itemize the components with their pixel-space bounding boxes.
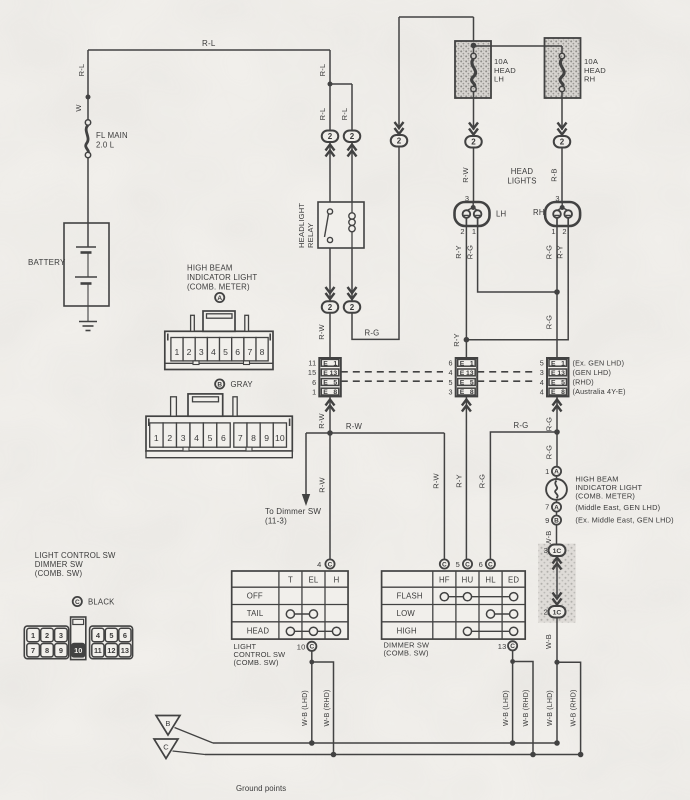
svg-text:2: 2 [471,138,476,147]
svg-text:1: 1 [561,360,565,367]
svg-text:1: 1 [472,227,476,236]
svg-text:1: 1 [545,467,549,476]
svg-text:6: 6 [235,347,240,357]
svg-text:R-W: R-W [346,422,363,431]
svg-text:2: 2 [397,137,402,146]
svg-text:(Australia 4Y-E): (Australia 4Y-E) [573,387,626,396]
svg-text:1: 1 [312,387,316,396]
svg-text:3: 3 [448,387,452,396]
svg-text:10: 10 [74,646,82,655]
svg-text:5: 5 [456,560,460,569]
svg-text:1: 1 [470,360,474,367]
svg-text:6: 6 [123,631,127,640]
svg-text:11: 11 [308,359,316,368]
svg-text:5: 5 [333,380,337,387]
svg-text:RELAY: RELAY [306,223,315,248]
svg-text:2: 2 [350,132,355,141]
svg-text:E: E [460,389,465,396]
svg-text:E: E [460,370,465,377]
svg-text:FL MAIN: FL MAIN [96,131,128,140]
svg-text:C: C [488,561,493,568]
svg-text:OFF: OFF [247,592,263,601]
svg-text:10A: 10A [494,57,509,66]
svg-text:(COMB. METER): (COMB. METER) [575,492,635,501]
svg-text:R-L: R-L [318,108,327,121]
svg-text:To Dimmer SW: To Dimmer SW [265,507,321,516]
svg-text:HIGH BEAM: HIGH BEAM [575,474,618,483]
svg-text:(Ex. GEN LHD): (Ex. GEN LHD) [573,359,625,368]
svg-text:ED: ED [508,576,519,585]
svg-text:C: C [465,561,470,568]
svg-text:8: 8 [260,347,265,357]
svg-text:E: E [551,360,556,367]
svg-text:R-G: R-G [545,445,554,459]
svg-text:13: 13 [466,370,474,377]
svg-text:5: 5 [208,433,213,443]
svg-text:E: E [323,389,328,396]
svg-text:HEADLIGHT: HEADLIGHT [297,203,306,248]
svg-text:3: 3 [59,631,63,640]
svg-text:C: C [75,599,80,606]
svg-text:2: 2 [460,227,464,236]
svg-text:INDICATOR LIGHT: INDICATOR LIGHT [575,483,642,492]
svg-text:W-B (LHD): W-B (LHD) [503,690,510,726]
svg-text:7: 7 [31,646,35,655]
svg-text:7: 7 [238,433,243,443]
svg-text:7: 7 [545,503,549,512]
svg-text:R-G: R-G [545,315,554,329]
svg-text:15: 15 [308,368,316,377]
svg-text:2: 2 [45,631,49,640]
svg-text:2: 2 [328,132,333,141]
svg-text:(COMB. SW): (COMB. SW) [35,569,83,578]
svg-text:R-W: R-W [317,323,326,339]
svg-text:13: 13 [330,370,338,377]
svg-text:C: C [328,561,333,568]
svg-text:10A: 10A [584,57,599,66]
svg-text:R-L: R-L [77,64,86,77]
svg-text:8: 8 [251,433,256,443]
svg-text:W-B (LHD): W-B (LHD) [547,690,554,726]
svg-text:3: 3 [540,368,544,377]
svg-text:13: 13 [557,370,565,377]
svg-text:4: 4 [211,347,216,357]
svg-text:8: 8 [333,389,337,396]
svg-text:1C: 1C [553,610,562,617]
svg-text:B: B [217,381,222,388]
svg-text:BATTERY: BATTERY [28,258,66,267]
svg-text:R-W: R-W [461,166,470,182]
svg-text:W-B: W-B [544,530,553,545]
svg-text:2: 2 [562,227,566,236]
svg-text:2: 2 [187,347,192,357]
svg-text:T: T [288,576,293,585]
svg-text:E: E [551,370,556,377]
svg-text:8: 8 [561,389,565,396]
svg-text:6: 6 [448,359,452,368]
svg-text:HEAD: HEAD [247,626,270,635]
svg-text:R-G: R-G [545,417,554,431]
svg-text:W: W [74,104,83,112]
svg-text:E: E [460,380,465,387]
svg-text:9: 9 [545,516,549,525]
svg-text:A: A [554,504,559,511]
svg-text:W-B (LHD): W-B (LHD) [302,690,309,726]
svg-text:R-G: R-G [545,245,554,259]
svg-text:LIGHT CONTROL SW: LIGHT CONTROL SW [35,551,116,560]
svg-text:5: 5 [470,380,474,387]
svg-text:HIGH: HIGH [397,626,417,635]
svg-text:4: 4 [194,433,199,443]
svg-text:INDICATOR LIGHT: INDICATOR LIGHT [187,273,257,282]
svg-text:2: 2 [328,303,333,312]
svg-text:3: 3 [181,433,186,443]
svg-text:R-W: R-W [318,476,327,492]
svg-text:2: 2 [350,303,355,312]
svg-text:R-G: R-G [514,421,529,430]
svg-text:5: 5 [109,631,113,640]
svg-text:E: E [551,380,556,387]
svg-text:(COMB. SW): (COMB. SW) [234,658,279,667]
svg-text:(Middle East, GEN LHD): (Middle East, GEN LHD) [575,503,660,512]
svg-text:1: 1 [175,347,180,357]
svg-text:(11-3): (11-3) [265,517,287,526]
svg-text:LH: LH [496,210,506,219]
svg-text:R-W: R-W [317,412,326,428]
svg-text:RH: RH [584,75,595,84]
svg-text:3: 3 [544,546,548,555]
svg-text:HL: HL [485,576,496,585]
svg-text:1: 1 [154,433,159,443]
svg-text:10: 10 [275,433,285,443]
svg-text:HEAD: HEAD [494,66,516,75]
svg-text:4: 4 [540,387,544,396]
svg-text:R-G: R-G [478,474,487,488]
svg-text:1: 1 [31,631,35,640]
svg-text:HF: HF [439,576,450,585]
svg-text:C: C [309,644,314,651]
svg-text:5: 5 [448,378,452,387]
svg-text:8: 8 [470,389,474,396]
svg-text:HEAD: HEAD [511,167,534,176]
svg-text:R-W: R-W [432,472,441,488]
svg-text:3: 3 [199,347,204,357]
svg-text:9: 9 [264,433,269,443]
svg-text:B: B [165,719,170,728]
svg-text:HU: HU [462,576,474,585]
svg-text:R-B: R-B [550,168,559,182]
svg-text:R-L: R-L [318,64,327,77]
svg-text:W-B (RHD): W-B (RHD) [523,689,530,726]
svg-text:W-B (RHD): W-B (RHD) [571,689,578,726]
svg-text:3: 3 [465,194,469,203]
svg-text:1: 1 [551,227,555,236]
svg-text:R-L: R-L [340,108,349,121]
svg-text:E: E [323,370,328,377]
svg-text:R-Y: R-Y [455,474,464,488]
svg-text:7: 7 [247,347,252,357]
svg-text:RH: RH [533,208,545,217]
svg-text:(RHD): (RHD) [573,378,594,387]
svg-text:13: 13 [498,642,507,651]
svg-text:(Ex. Middle East, GEN LHD): (Ex. Middle East, GEN LHD) [575,516,673,525]
svg-text:(COMB. METER): (COMB. METER) [187,283,250,292]
svg-text:4: 4 [317,560,321,569]
svg-text:EL: EL [309,576,319,585]
svg-text:W-B (RHD): W-B (RHD) [324,689,331,726]
svg-text:2: 2 [560,138,565,147]
svg-text:BLACK: BLACK [88,597,115,606]
svg-text:E: E [460,360,465,367]
svg-text:8: 8 [45,646,49,655]
svg-text:LH: LH [494,75,504,84]
svg-text:A: A [217,295,222,302]
svg-text:R-G: R-G [365,329,380,338]
svg-text:FLASH: FLASH [397,592,423,601]
svg-text:W-B: W-B [544,634,553,649]
svg-text:5: 5 [223,347,228,357]
svg-text:C: C [442,561,447,568]
svg-text:6: 6 [479,560,483,569]
svg-text:C: C [510,643,515,650]
svg-text:Ground points: Ground points [236,784,286,793]
svg-text:LOW: LOW [397,609,416,618]
svg-text:E: E [551,389,556,396]
svg-text:1C: 1C [553,548,562,555]
svg-text:R-Y: R-Y [452,333,461,347]
svg-text:E: E [323,360,328,367]
svg-text:3: 3 [555,194,559,203]
svg-text:10: 10 [297,642,306,651]
svg-text:4: 4 [540,378,544,387]
svg-text:(GEN LHD): (GEN LHD) [573,368,612,377]
svg-text:C: C [163,743,169,752]
svg-text:R-L: R-L [202,39,216,48]
svg-text:12: 12 [107,646,115,655]
svg-text:B: B [554,517,559,524]
svg-text:2: 2 [544,608,548,617]
svg-text:6: 6 [312,378,316,387]
svg-text:4: 4 [448,368,452,377]
svg-text:H: H [334,576,340,585]
svg-text:LIGHTS: LIGHTS [507,177,536,186]
svg-text:GRAY: GRAY [231,380,254,389]
svg-text:5: 5 [540,359,544,368]
svg-text:E: E [323,380,328,387]
svg-text:2.0 L: 2.0 L [96,141,115,150]
svg-text:9: 9 [59,646,63,655]
svg-text:DIMMER SW: DIMMER SW [35,560,84,569]
svg-text:2: 2 [167,433,172,443]
svg-text:HEAD: HEAD [584,66,606,75]
svg-text:6: 6 [221,433,226,443]
svg-text:TAIL: TAIL [247,609,264,618]
svg-text:R-G: R-G [466,245,475,259]
svg-text:5: 5 [561,380,565,387]
svg-text:R-Y: R-Y [454,245,463,259]
svg-text:R-Y: R-Y [556,245,565,259]
svg-text:11: 11 [94,646,102,655]
svg-text:13: 13 [121,646,129,655]
svg-text:A: A [554,469,559,476]
svg-text:(COMB. SW): (COMB. SW) [384,649,429,658]
svg-text:1: 1 [333,360,337,367]
svg-text:HIGH BEAM: HIGH BEAM [187,264,233,273]
